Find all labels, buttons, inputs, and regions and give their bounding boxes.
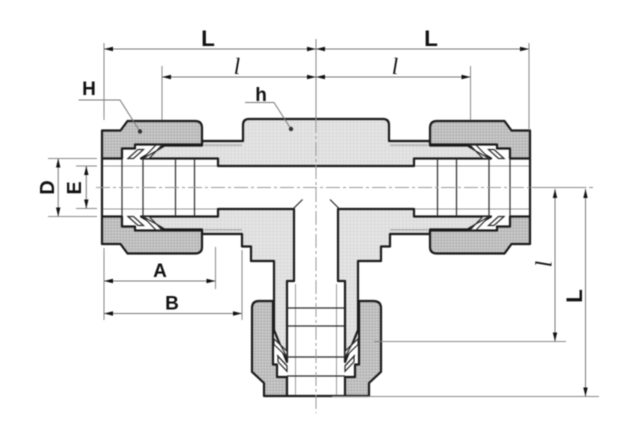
svg-text:l: l	[532, 261, 557, 267]
svg-text:A: A	[153, 261, 167, 282]
svg-text:D: D	[37, 180, 59, 194]
svg-text:H: H	[82, 79, 96, 100]
svg-text:l: l	[234, 54, 240, 79]
svg-text:L: L	[201, 26, 215, 51]
svg-text:l: l	[392, 54, 398, 79]
svg-text:L: L	[562, 289, 587, 303]
svg-text:L: L	[424, 26, 438, 51]
svg-text:E: E	[64, 181, 86, 194]
svg-text:B: B	[165, 294, 179, 315]
